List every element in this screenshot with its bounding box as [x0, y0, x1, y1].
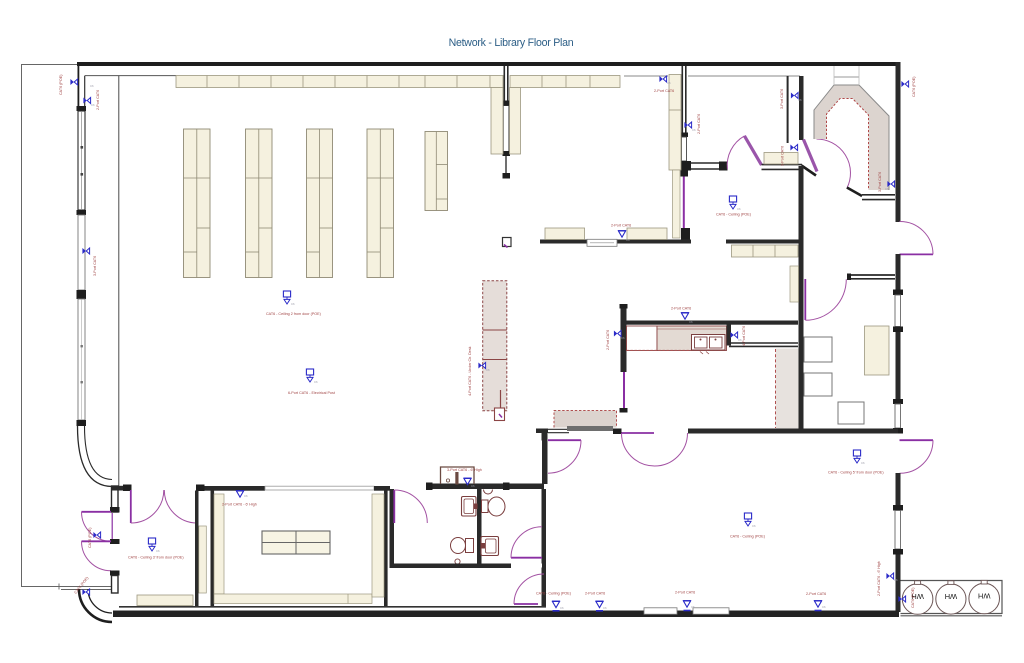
- svg-text:C6: C6: [738, 338, 742, 342]
- svg-text:C6: C6: [91, 103, 95, 107]
- svg-text:2-Port CAT6: 2-Port CAT6: [697, 114, 701, 134]
- svg-text:2-Port CAT6: 2-Port CAT6: [585, 592, 605, 596]
- svg-text:C6: C6: [291, 302, 295, 306]
- svg-text:CAT6 - Ceiling 5' from door (P: CAT6 - Ceiling 5' from door (POE): [828, 471, 884, 475]
- svg-text:C6: C6: [822, 605, 826, 609]
- svg-text:C6: C6: [560, 606, 564, 610]
- svg-text:4-Port CAT6 - Under Cir. Desk: 4-Port CAT6 - Under Cir. Desk: [468, 346, 472, 396]
- svg-text:C6: C6: [621, 336, 625, 340]
- svg-text:3-Port CAT6: 3-Port CAT6: [93, 256, 97, 276]
- svg-text:C6: C6: [692, 128, 696, 132]
- svg-text:2-Port CAT6: 2-Port CAT6: [606, 330, 610, 350]
- svg-text:WH: WH: [945, 592, 958, 601]
- svg-text:3-Port CAT6: 3-Port CAT6: [781, 146, 785, 166]
- svg-text:WH: WH: [978, 592, 991, 601]
- svg-text:C6: C6: [861, 461, 865, 465]
- svg-text:C6: C6: [486, 368, 490, 372]
- svg-text:C6: C6: [667, 81, 671, 85]
- svg-text:C6: C6: [626, 238, 630, 242]
- svg-text:2-Port CAT6: 2-Port CAT6: [611, 224, 631, 228]
- svg-text:6-Port CAT6 - Electrical Post: 6-Port CAT6 - Electrical Post: [288, 391, 335, 395]
- svg-text:C6: C6: [798, 98, 802, 102]
- svg-text:C6: C6: [156, 549, 160, 553]
- svg-text:CAT6 (POE): CAT6 (POE): [59, 75, 63, 95]
- svg-text:C6: C6: [894, 578, 898, 582]
- svg-text:CAT6 (POE): CAT6 (POE): [912, 77, 916, 97]
- svg-text:C6: C6: [603, 606, 607, 610]
- svg-text:CAT6 - Ceiling 2 from door (PO: CAT6 - Ceiling 2 from door (POE): [266, 312, 321, 316]
- svg-text:3-Port CAT6 - 6' High: 3-Port CAT6 - 6' High: [447, 468, 482, 472]
- svg-text:CAT6 - Ceiling (POE): CAT6 - Ceiling (POE): [536, 592, 571, 596]
- svg-text:3-Port CAT6: 3-Port CAT6: [878, 172, 882, 192]
- svg-text:Network - Library Floor Plan: Network - Library Floor Plan: [449, 37, 574, 49]
- svg-text:2-Port CAT6 - 6' High: 2-Port CAT6 - 6' High: [222, 503, 257, 507]
- svg-text:C6: C6: [885, 187, 889, 191]
- svg-text:CAT6 (POE): CAT6 (POE): [88, 528, 92, 548]
- svg-text:C6: C6: [752, 524, 756, 528]
- svg-text:C6: C6: [737, 207, 741, 211]
- svg-text:C6: C6: [314, 380, 318, 384]
- svg-text:2-Port CAT6: 2-Port CAT6: [96, 90, 100, 110]
- svg-text:C6: C6: [691, 605, 695, 609]
- svg-text:C6: C6: [689, 320, 693, 324]
- svg-text:CAT6 - Ceiling 3' from door (P: CAT6 - Ceiling 3' from door (POE): [128, 556, 184, 560]
- svg-text:4-Port CAT6: 4-Port CAT6: [742, 326, 746, 346]
- svg-text:C6: C6: [90, 84, 94, 88]
- svg-text:CAT6 (POE): CAT6 (POE): [911, 588, 915, 608]
- svg-text:CAT6 - Ceiling (POE): CAT6 - Ceiling (POE): [730, 535, 765, 539]
- svg-text:2-Port CAT6: 2-Port CAT6: [806, 592, 826, 596]
- svg-text:2-Port CAT6: 2-Port CAT6: [654, 89, 674, 93]
- svg-text:3-Port CAT6: 3-Port CAT6: [780, 89, 784, 109]
- svg-text:2-Port CAT6: 2-Port CAT6: [675, 591, 695, 595]
- svg-text:C6: C6: [244, 494, 248, 498]
- svg-text:C6: C6: [471, 484, 475, 488]
- svg-text:CAT6 - Ceiling (POE): CAT6 - Ceiling (POE): [716, 213, 751, 217]
- svg-text:2-Port CAT6: 2-Port CAT6: [671, 307, 691, 311]
- svg-text:2-Port CAT6 - 6' High: 2-Port CAT6 - 6' High: [877, 561, 881, 596]
